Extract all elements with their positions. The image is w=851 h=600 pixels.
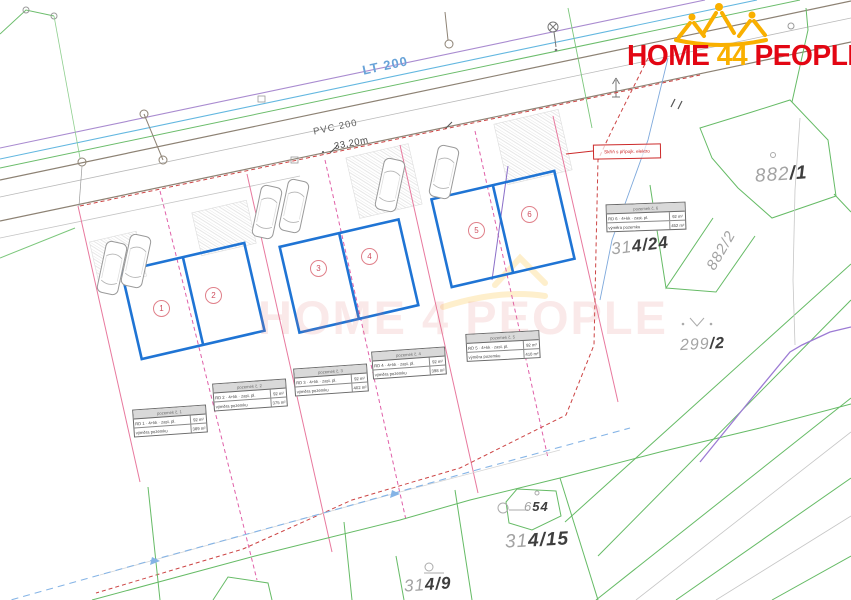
house-number-6: 6 bbox=[521, 206, 538, 223]
parcel-text: /2 bbox=[709, 335, 725, 353]
parcel-label-299-2: 299/2 bbox=[680, 335, 726, 355]
table-cell: výměra pozemku bbox=[607, 221, 669, 231]
logo-four-digit: 4 bbox=[732, 40, 747, 72]
label-leader-line bbox=[566, 151, 593, 154]
parcel-text: 4/15 bbox=[528, 528, 570, 551]
logo: HOME 44 PEOPLE bbox=[627, 40, 851, 73]
plot-info-table-2: pozemek č. 2 RD 2 · 4+kk · zast. pl.92 m… bbox=[212, 378, 288, 411]
house-number-4: 4 bbox=[361, 248, 378, 265]
parcel-label-654: 654 bbox=[524, 499, 549, 514]
table-cell: 92 m² bbox=[351, 373, 368, 382]
parcel-text: 4/24 bbox=[631, 233, 670, 256]
table-cell: 92 m² bbox=[429, 356, 446, 365]
logo-four: 4 bbox=[717, 40, 732, 72]
logo-people: PEOPLE bbox=[754, 40, 851, 72]
table-cell: 92 m² bbox=[669, 212, 685, 221]
electric-cabinet-label: Skříň s přípojk. elektro bbox=[593, 143, 661, 159]
table-cell: 92 m² bbox=[523, 340, 539, 349]
table-cell: výměra pozemku bbox=[467, 350, 523, 361]
parcel-text: 882 bbox=[754, 163, 790, 186]
table-cell: 402 m² bbox=[351, 382, 368, 391]
blue-flow-line bbox=[0, 428, 630, 600]
table-cell: 92 m² bbox=[270, 388, 287, 397]
table-cell: 410 m² bbox=[523, 349, 539, 358]
house-number-1: 1 bbox=[153, 300, 170, 317]
house-number-2: 2 bbox=[205, 287, 222, 304]
parcel-text: 6 bbox=[524, 499, 532, 514]
plot-info-table-5: pozemek č. 5 RD 5 · 4+kk · zast. pl.92 m… bbox=[465, 330, 540, 362]
parcel-text: 299 bbox=[680, 336, 711, 355]
table-cell: 452 m² bbox=[669, 221, 685, 230]
parcel-text: /1 bbox=[789, 162, 808, 184]
table-cell: 92 m² bbox=[190, 414, 207, 423]
plot-info-table-3: pozemek č. 3 RD 3 · 4+kk · zast. pl.92 m… bbox=[293, 363, 369, 396]
lamppost-icon bbox=[548, 22, 558, 51]
parcel-text: 31 bbox=[504, 530, 528, 552]
parcel-label-314-9: 314/9 bbox=[403, 573, 452, 596]
table-cell: 389 m² bbox=[190, 423, 207, 432]
parcel-text: 31 bbox=[610, 237, 633, 258]
table-cell: 398 m² bbox=[429, 365, 446, 374]
parcel-text: 31 bbox=[403, 575, 425, 595]
road-and-utility-lines bbox=[0, 0, 851, 258]
parcel-text: 54 bbox=[532, 499, 548, 514]
parcel-label-882-1: 882/1 bbox=[754, 162, 808, 188]
plot-info-table-6: pozemek č. 6 RD 6 · 4+kk · zast. pl.92 m… bbox=[606, 202, 687, 233]
parcel-label-314-15: 314/15 bbox=[504, 528, 569, 553]
site-plan-page: HOME 4 PEOPLE HOME 44 PEOPLE LT 200 PVC … bbox=[0, 0, 851, 600]
logo-home: HOME bbox=[627, 40, 709, 72]
plot-info-table-1: pozemek č. 1 RD 1 · 4+kk · zast. pl.92 m… bbox=[132, 404, 208, 437]
house-pair-5-6 bbox=[431, 171, 574, 287]
table-cell: 375 m² bbox=[270, 397, 287, 406]
house-number-5: 5 bbox=[468, 222, 485, 239]
parcel-text: 4/9 bbox=[424, 573, 452, 594]
watermark-text: HOME 4 PEOPLE bbox=[258, 290, 668, 345]
table-row: výměra pozemku452 m² bbox=[607, 221, 685, 232]
plot-info-table-4: pozemek č. 4 RD 4 · 4+kk · zast. pl.92 m… bbox=[371, 346, 447, 379]
house-number-3: 3 bbox=[310, 260, 327, 277]
